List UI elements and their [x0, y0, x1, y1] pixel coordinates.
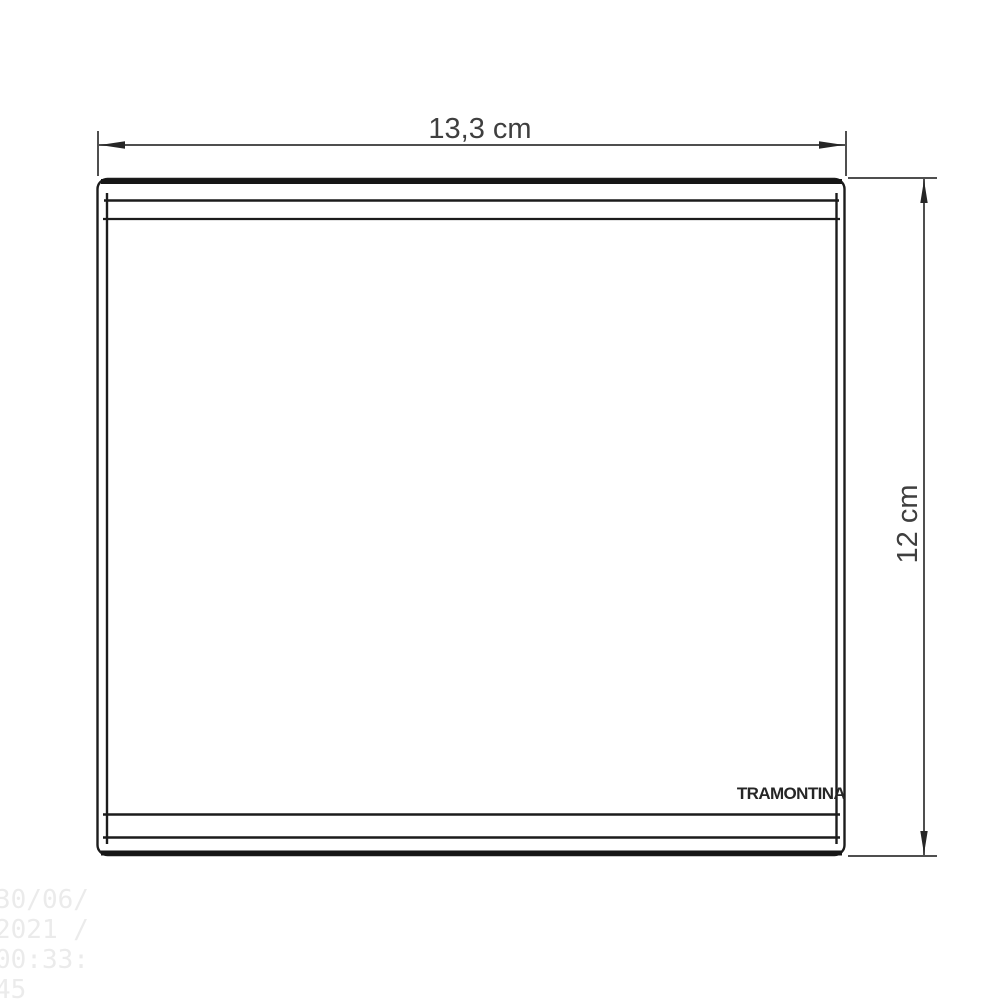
watermark-line-3: 00:33:	[0, 945, 89, 975]
product-dimension-diagram: TRAMONTINA 13,3 cm 12 cm 30/06/ 2021 / 0…	[0, 0, 1000, 1000]
watermark-line-1: 30/06/	[0, 885, 89, 915]
width-dimension-label: 13,3 cm	[428, 113, 531, 145]
width-arrow-left-icon	[100, 141, 125, 149]
wall-plate-drawing: TRAMONTINA	[98, 179, 846, 855]
width-arrow-right-icon	[819, 141, 844, 149]
height-arrow-up-icon	[920, 180, 927, 203]
watermark-line-2: 2021 /	[0, 915, 89, 945]
height-arrow-down-icon	[920, 831, 927, 854]
height-dimension-label: 12 cm	[892, 485, 924, 564]
watermark-line-4: 45	[0, 975, 26, 1000]
height-dimension: 12 cm	[848, 178, 937, 856]
brand-logo: TRAMONTINA	[737, 784, 846, 803]
dimension-drawing-svg: TRAMONTINA 13,3 cm 12 cm 30/06/ 2021 / 0…	[0, 0, 1000, 1000]
plate-outer-outline	[98, 179, 845, 855]
timestamp-watermark: 30/06/ 2021 / 00:33: 45	[0, 885, 89, 1000]
width-dimension: 13,3 cm	[98, 113, 846, 176]
